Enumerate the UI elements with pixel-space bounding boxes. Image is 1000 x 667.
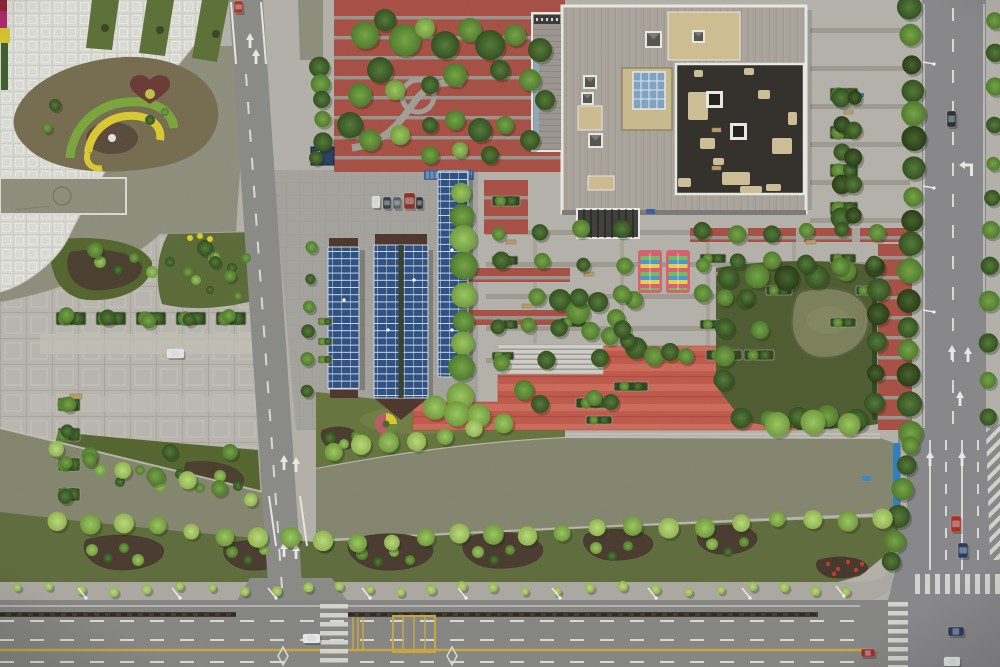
- aerial-scene: [0, 0, 1000, 667]
- vignette: [0, 0, 1000, 667]
- aerial-photo-stage: [0, 0, 1000, 667]
